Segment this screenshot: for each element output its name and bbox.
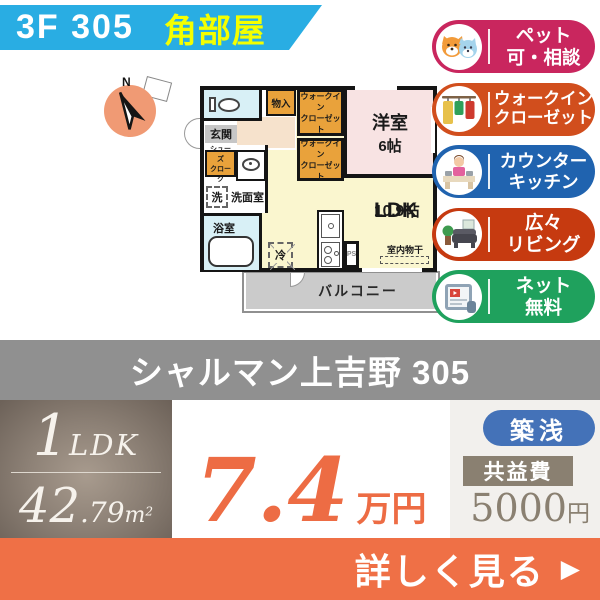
pipe-space-label: PS xyxy=(347,251,356,258)
badge-net-text: ネット 無料 xyxy=(492,275,595,319)
layout-type: 1LDK xyxy=(33,408,139,465)
shoe-closet: シューズ クローク xyxy=(205,150,236,177)
walkin-closet-2-label: ウォークイン クローゼット xyxy=(300,138,341,182)
pipe-space: PS xyxy=(344,241,359,268)
kitchen-stove-icon xyxy=(321,242,340,267)
details-button[interactable]: 詳しく見る ▶ xyxy=(0,538,600,600)
badge-pets-line2: 可・相談 xyxy=(492,47,595,69)
divider xyxy=(11,472,161,473)
badge-net-line1: ネット xyxy=(492,275,595,297)
washbasin xyxy=(236,150,266,181)
building-name: シャルマン上吉野 305 xyxy=(130,346,470,394)
pets-icon xyxy=(436,24,482,70)
entrance-door-arc xyxy=(184,118,200,149)
laundry-label: 洗 xyxy=(212,189,223,205)
toilet-tank-icon xyxy=(209,97,216,112)
counter-kitchen-icon xyxy=(436,149,482,195)
badge-counter-kitchen: カウンター キッチン xyxy=(432,145,595,198)
kitchen-unit xyxy=(317,210,344,270)
badge-kitchen-text: カウンター キッチン xyxy=(492,151,595,192)
built-age-badge: 築浅 xyxy=(483,410,595,446)
entrance-floor xyxy=(237,117,295,148)
window-top xyxy=(355,86,397,90)
walkin-closet-1: ウォークイン クローゼット xyxy=(297,89,344,136)
floor-plan: N 玄関 物入 ウォークイン クローゼット ウォークイン クローゼット 洋室 6… xyxy=(100,75,445,320)
compass-circle xyxy=(104,85,156,137)
area-integer: 42 xyxy=(19,478,80,534)
badge-free-internet: ネット 無料 xyxy=(432,270,595,323)
toilet-room xyxy=(204,90,262,121)
area-decimal: .79 xyxy=(80,496,125,529)
toilet-bowl-icon xyxy=(218,98,240,112)
floor-banner: 3F 305 角部屋 xyxy=(0,5,322,50)
badge-living-text: 広々 リビング xyxy=(492,212,595,256)
common-fee-label: 共益費 xyxy=(484,456,553,486)
badge-separator xyxy=(488,279,490,314)
rent-price: 7.4 万円 xyxy=(172,400,450,538)
rent-unit: 万円 xyxy=(357,481,427,532)
walkin-closet-1-label: ウォークイン クローゼット xyxy=(300,91,341,135)
balcony-label: バルコニー xyxy=(318,281,398,301)
badge-spacious-living: 広々 リビング xyxy=(432,208,595,261)
info-row: 1LDK 42.79m2 7.4 万円 築浅 共益費 5000円 xyxy=(0,400,600,538)
badge-separator xyxy=(488,154,490,189)
badge-wic-text: ウォークイン クローゼット xyxy=(492,90,595,129)
badge-pets-ok: ペット 可・相談 xyxy=(432,20,595,73)
common-fee-header: 共益費 xyxy=(463,456,573,486)
badge-separator xyxy=(488,217,490,252)
area-unit: m xyxy=(125,503,146,528)
badge-walkin-closet: ウォークイン クローゼット xyxy=(432,83,595,136)
western-room-label: 洋室 xyxy=(372,109,408,135)
rent-amount: 7.4 xyxy=(195,446,348,534)
badge-wic-line1: ウォークイン xyxy=(492,90,595,109)
fee-value: 5000 xyxy=(470,486,567,530)
balcony: バルコニー xyxy=(246,273,436,309)
corner-room-label: 角部屋 xyxy=(164,4,266,52)
floor-room-label: 3F 305 xyxy=(16,8,134,47)
western-room-size: 6帖 xyxy=(378,135,401,156)
refrigerator-space: 冷 xyxy=(268,242,293,268)
badge-living-line2: リビング xyxy=(492,234,595,256)
built-age-label: 築浅 xyxy=(510,411,568,446)
badge-wic-line2: クローゼット xyxy=(492,109,595,128)
closet-icon xyxy=(436,86,482,132)
badge-separator xyxy=(488,29,490,64)
building-name-band: シャルマン上吉野 305 xyxy=(0,340,600,400)
bathtub-icon xyxy=(208,236,254,267)
storage-label: 物入 xyxy=(271,96,290,110)
layout-number: 1 xyxy=(33,403,69,469)
floor-area: 42.79m2 xyxy=(19,482,153,530)
washroom-label: 洗面室 xyxy=(231,189,264,205)
western-room: 洋室 6帖 xyxy=(344,90,433,178)
listing-card[interactable]: 3F 305 角部屋 N 玄関 物入 xyxy=(0,0,600,600)
fee-unit: 円 xyxy=(567,501,590,527)
badge-pets-line1: ペット xyxy=(492,25,595,47)
compass: N xyxy=(102,77,172,141)
indoor-drying-label: 室内物干 xyxy=(380,243,430,256)
walkin-closet-2: ウォークイン クローゼット xyxy=(297,138,344,181)
arrow-right-icon: ▶ xyxy=(561,554,580,584)
bathroom: 浴室 xyxy=(204,213,262,270)
badge-living-line1: 広々 xyxy=(492,212,595,234)
badge-separator xyxy=(488,92,490,127)
layout-area-box: 1LDK 42.79m2 xyxy=(0,400,172,538)
badge-kitchen-line1: カウンター xyxy=(492,151,595,172)
window-bottom xyxy=(362,268,422,272)
area-unit-sup: 2 xyxy=(145,505,153,519)
compass-needle-icon xyxy=(104,85,156,137)
badge-kitchen-line2: キッチン xyxy=(492,172,595,193)
common-fee-amount: 5000円 xyxy=(470,489,590,527)
badge-net-line2: 無料 xyxy=(492,297,595,319)
indoor-drying-rail xyxy=(380,256,429,264)
storage-room: 物入 xyxy=(266,89,296,116)
bathroom-label: 浴室 xyxy=(213,220,235,236)
feature-badges: ペット 可・相談 ウォークイン クローゼット xyxy=(432,20,595,333)
badge-pets-text: ペット 可・相談 xyxy=(492,25,595,69)
refrigerator-label: 冷 xyxy=(274,247,287,263)
living-room-icon xyxy=(436,211,482,257)
layout-letters: LDK xyxy=(69,428,139,462)
tags-column: 築浅 共益費 5000円 xyxy=(450,400,600,538)
entrance-label: 玄関 xyxy=(205,125,237,143)
shoe-closet-label: シューズ クローク xyxy=(207,144,234,184)
compass-north-label: N xyxy=(122,75,131,89)
washbasin-drain-icon xyxy=(249,162,252,165)
internet-icon xyxy=(436,274,482,320)
laundry-space: 洗 xyxy=(206,186,228,208)
kitchen-sink-icon xyxy=(321,214,340,238)
ldk-size-label: 10.9帖 xyxy=(374,199,420,221)
details-button-label: 詳しく見る xyxy=(355,543,545,595)
